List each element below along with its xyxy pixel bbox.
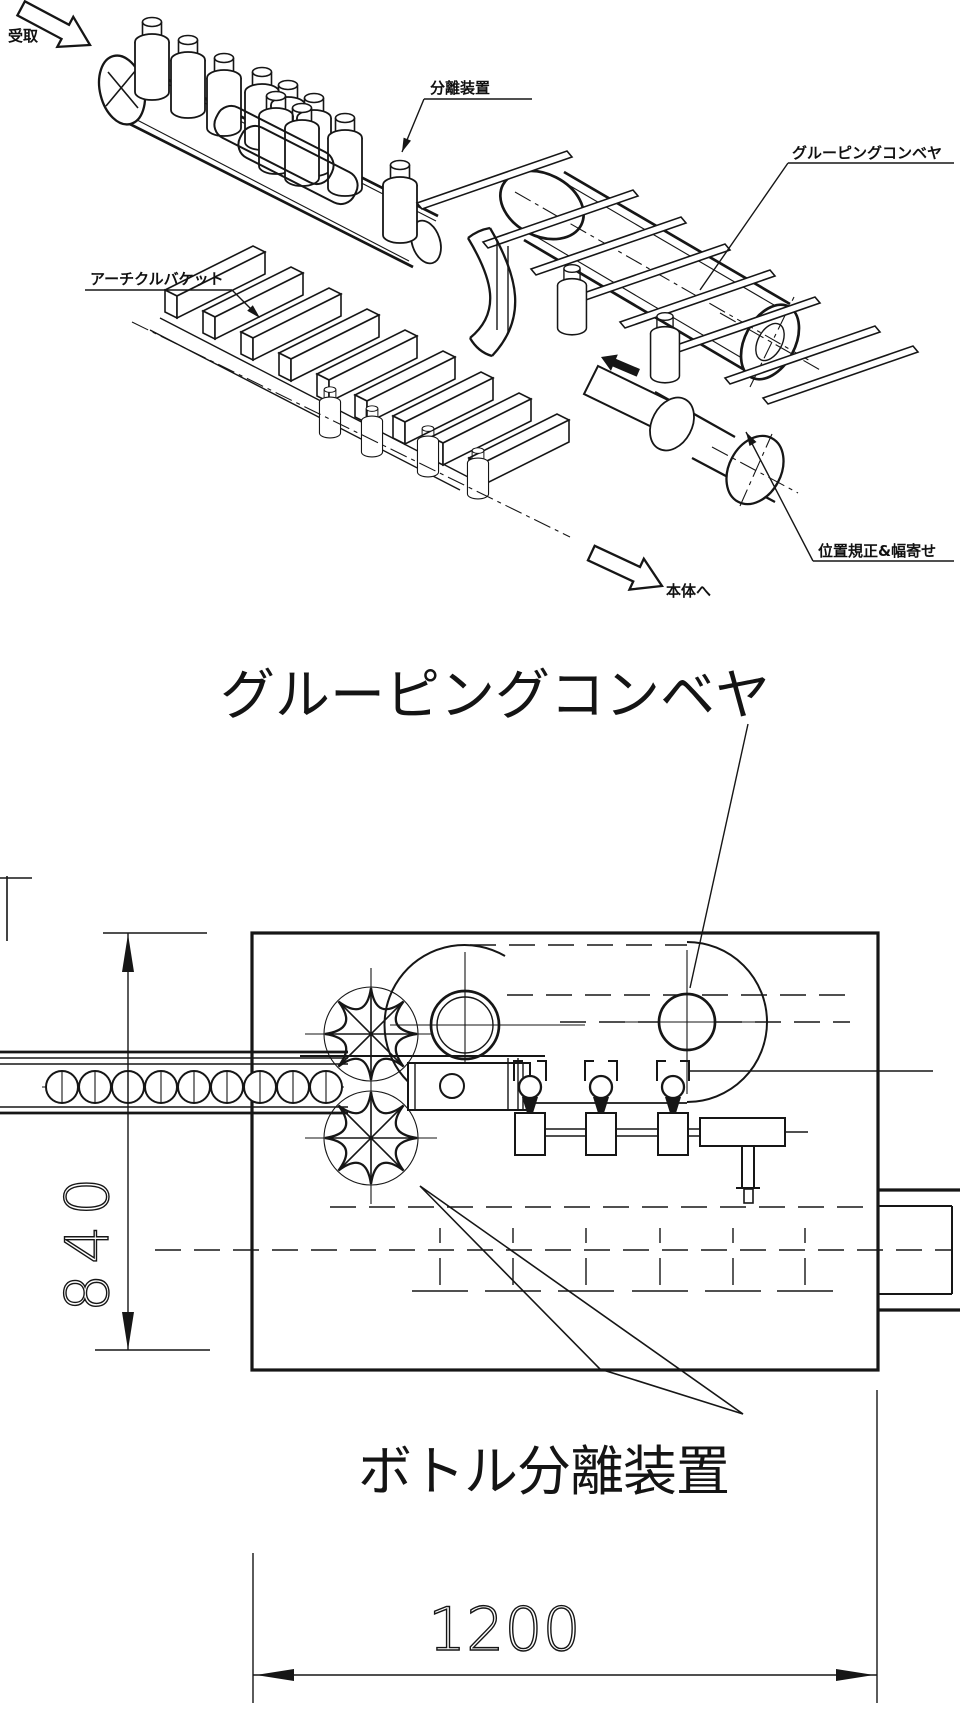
star-wheel-lower [324, 1091, 418, 1185]
width-dimension-value: 1200 [428, 1595, 581, 1665]
clamp-unit [585, 1061, 617, 1155]
plan-title: グルーピングコンベヤ [220, 663, 770, 727]
dimension-840: 840 [53, 933, 210, 1350]
positioning-label: 位置規正&幅寄せ [818, 542, 936, 560]
star-wheel-upper [324, 987, 418, 1081]
plan-view [0, 876, 960, 1370]
hidden-lines [155, 1207, 952, 1291]
infeed-conveyor-plan [0, 1052, 348, 1113]
clamp-unit [657, 1061, 689, 1155]
isometric-view: 受取 分離装置 グルーピングコンベヤ アーチクルバケット 位置規正&幅寄せ 本体… [8, 0, 954, 601]
receive-label: 受取 [8, 27, 39, 45]
iso-labels: 受取 分離装置 グルーピングコンベヤ アーチクルバケット 位置規正&幅寄せ 本体… [8, 27, 954, 600]
grouping-conveyor-label-iso: グルーピングコンベヤ [792, 144, 942, 162]
engineering-drawing-page: 受取 分離装置 グルーピングコンベヤ アーチクルバケット 位置規正&幅寄せ 本体… [0, 0, 960, 1719]
separator-label: 分離装置 [430, 79, 490, 97]
article-bucket-label: アーチクルバケット [90, 270, 224, 288]
to-main-body-label: 本体へ [666, 582, 711, 600]
height-dimension-value: 840 [53, 1167, 123, 1312]
to-main-body-arrow-icon [584, 538, 669, 602]
bottle-separator-label: ボトル分離装置 [358, 1440, 729, 1503]
dimension-1200: 1200 [253, 1390, 877, 1703]
technical-drawing: 受取 分離装置 グルーピングコンベヤ アーチクルバケット 位置規正&幅寄せ 本体… [0, 0, 960, 1719]
bottle-separator-leader-arrow [420, 1186, 743, 1414]
bottles-infeed [135, 18, 417, 244]
positioning-belt [641, 390, 798, 514]
clamp-stations [300, 1056, 808, 1203]
